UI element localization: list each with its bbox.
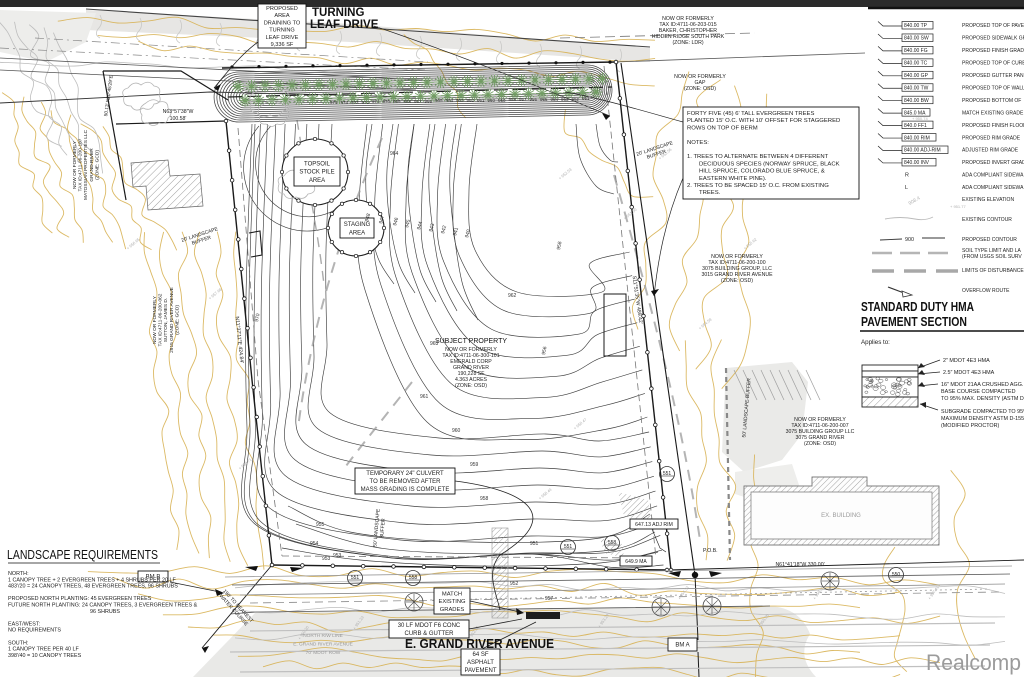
svg-text:PROPOSED FINISH GRADE: PROPOSED FINISH GRADE (962, 48, 1024, 54)
svg-text:EX. BUILDING: EX. BUILDING (821, 513, 861, 519)
svg-text:(ZONE: OSD): (ZONE: OSD) (721, 278, 753, 284)
svg-text:TO BE REMOVED AFTER: TO BE REMOVED AFTER (370, 479, 442, 485)
svg-text:HILL SPRUCE, COLORADO BLUE SPR: HILL SPRUCE, COLORADO BLUE SPRUCE, & (699, 169, 825, 175)
svg-text:TURNING: TURNING (269, 28, 294, 34)
svg-text:+ 950.74: + 950.74 (912, 116, 928, 121)
svg-text:PROPOSED GUTTER PAN: PROPOSED GUTTER PAN (962, 73, 1024, 79)
svg-text:STAGING: STAGING (344, 222, 371, 228)
svg-text:PROPOSED: PROPOSED (266, 6, 298, 12)
svg-text:551: 551 (564, 544, 573, 550)
svg-text:MASS GRADING IS COMPLETE: MASS GRADING IS COMPLETE (361, 487, 450, 493)
svg-text:LEAF DRIVE: LEAF DRIVE (266, 35, 299, 41)
svg-text:Applies to:: Applies to: (861, 339, 890, 346)
svg-text:(FROM USGS SOIL SURV: (FROM USGS SOIL SURV (962, 254, 1022, 260)
svg-text:Realcomp: Realcomp (926, 650, 1021, 675)
svg-text:840.00 BW: 840.00 BW (904, 98, 929, 104)
svg-text:483'/20 = 24 CANOPY TREES, 48: 483'/20 = 24 CANOPY TREES, 48 EVERGREEN … (8, 584, 178, 590)
svg-text:551: 551 (351, 575, 360, 581)
svg-text:958: 958 (509, 97, 517, 102)
svg-text:955: 955 (540, 97, 548, 102)
svg-text:N61°41′18″W 330.00′: N61°41′18″W 330.00′ (775, 562, 824, 568)
svg-text:SUTTON, JAMES D.: SUTTON, JAMES D. (163, 298, 169, 342)
svg-text:MATOSSIAN PROPERTIES LLC: MATOSSIAN PROPERTIES LLC (83, 129, 89, 200)
svg-text:PAVEMENT: PAVEMENT (464, 668, 496, 674)
svg-text:PROPOSED TOP OF PAVE: PROPOSED TOP OF PAVE (962, 23, 1024, 29)
svg-text:PROPOSED TOP OF CURB: PROPOSED TOP OF CURB (962, 61, 1024, 67)
svg-text:958: 958 (480, 496, 489, 502)
svg-text:647.13 ADJ RIM: 647.13 ADJ RIM (635, 522, 673, 528)
svg-text:963: 963 (430, 341, 439, 347)
svg-text:(ZONE: OSD): (ZONE: OSD) (804, 441, 836, 447)
svg-text:FUTURE NORTH PLANTING: 24 CANO: FUTURE NORTH PLANTING: 24 CANOPY TREES, … (8, 603, 198, 609)
svg-text:LIMITS OF DISTURBANCE: LIMITS OF DISTURBANCE (962, 268, 1024, 274)
svg-text:TAX ID:4711-06-200-187: TAX ID:4711-06-200-187 (78, 138, 84, 191)
svg-text:PROPOSED SIDEWALK GR: PROPOSED SIDEWALK GR (962, 36, 1024, 42)
svg-text:PROPOSED CONTOUR: PROPOSED CONTOUR (962, 237, 1017, 243)
svg-text:LEAF DRIVE: LEAF DRIVE (310, 19, 379, 31)
svg-text:(ZONE: LDR): (ZONE: LDR) (672, 40, 703, 46)
svg-text:MATCH EXISTING GRADE: MATCH EXISTING GRADE (962, 110, 1024, 116)
svg-text:30 LF MDOT F6 CONC: 30 LF MDOT F6 CONC (398, 623, 461, 629)
svg-text:ASPHALT: ASPHALT (467, 660, 494, 666)
svg-text:962: 962 (508, 293, 517, 299)
svg-text:840.00 GP: 840.00 GP (904, 73, 929, 79)
svg-text:NOW OR FORMERLY: NOW OR FORMERLY (72, 140, 78, 189)
svg-text:975: 975 (330, 100, 338, 105)
svg-text:964: 964 (390, 151, 399, 157)
svg-text:9,336 SF: 9,336 SF (271, 42, 294, 48)
svg-text:GRADES: GRADES (440, 607, 465, 613)
svg-text:BASE COURSE COMPACTED: BASE COURSE COMPACTED (941, 389, 1016, 395)
svg-text:ADA COMPLIANT SIDEWA: ADA COMPLIANT SIDEWA (962, 173, 1024, 179)
svg-text:1 CANOPY TREE + 2 EVERGREEN TR: 1 CANOPY TREE + 2 EVERGREEN TREES + 4 SH… (8, 577, 176, 583)
svg-text:951: 951 (530, 541, 539, 547)
svg-text:963: 963 (456, 98, 464, 103)
svg-text:OVERFLOW ROUTE: OVERFLOW ROUTE (962, 288, 1010, 294)
svg-text:PAVEMENT SECTION: PAVEMENT SECTION (861, 314, 967, 329)
svg-text:PROPOSED FINISH FLOOR: PROPOSED FINISH FLOOR (962, 123, 1024, 129)
svg-text:952: 952 (510, 581, 519, 587)
svg-text:965: 965 (435, 98, 443, 103)
svg-text:845.0 MA: 845.0 MA (904, 110, 926, 116)
svg-text:973: 973 (351, 100, 359, 105)
svg-text:840.0 FF1: 840.0 FF1 (904, 123, 927, 129)
svg-text:966: 966 (425, 99, 433, 104)
svg-text:GRAND RIVER: GRAND RIVER (89, 148, 95, 182)
svg-text:974: 974 (341, 100, 349, 105)
svg-text:840.00 SW: 840.00 SW (904, 36, 929, 42)
svg-text:AREA: AREA (309, 178, 325, 184)
svg-text:959: 959 (470, 462, 479, 468)
svg-text:840.00 ADJ-RIM: 840.00 ADJ-RIM (904, 148, 941, 154)
svg-text:N63°57′38″W: N63°57′38″W (163, 109, 194, 115)
svg-text:EAST/WEST:: EAST/WEST: (8, 621, 40, 627)
svg-text:558: 558 (409, 575, 418, 581)
svg-text:PLANTED 15' O.C. WITH 10' OFFS: PLANTED 15' O.C. WITH 10' OFFSET FOR STA… (687, 118, 840, 124)
svg-text:TURNING: TURNING (312, 7, 364, 19)
svg-text:2. TREES TO BE SPACED 15' O.: 2. TREES TO BE SPACED 15' O.C. FROM EXIS… (687, 183, 829, 189)
svg-text:961: 961 (420, 394, 429, 400)
svg-text:551: 551 (663, 471, 672, 477)
svg-text:398'/40 = 10 CANOPY TREES: 398'/40 = 10 CANOPY TREES (8, 653, 82, 659)
svg-text:969: 969 (393, 99, 401, 104)
svg-text:(ZONE: GCD): (ZONE: GCD) (94, 150, 100, 180)
svg-text:2.5″ MDOT 4E3 HMA: 2.5″ MDOT 4E3 HMA (943, 370, 995, 376)
svg-text:96 SHRUBS: 96 SHRUBS (90, 609, 120, 615)
svg-text:PROPOSED RIM GRADE: PROPOSED RIM GRADE (962, 135, 1021, 141)
svg-text:2″ MDOT 4E3 HMA: 2″ MDOT 4E3 HMA (943, 358, 990, 364)
svg-text:LANDSCAPE REQUIREMENTS: LANDSCAPE REQUIREMENTS (7, 548, 158, 562)
svg-text:16″ MDOT 21AA CRUSHED AGG.: 16″ MDOT 21AA CRUSHED AGG. (941, 382, 1023, 388)
svg-text:967: 967 (414, 99, 422, 104)
svg-text:953: 953 (322, 556, 331, 562)
svg-text:(ZONE: OSD): (ZONE: OSD) (684, 86, 716, 92)
svg-text:NOTES:: NOTES: (687, 140, 709, 146)
svg-text:TEMPORARY 24" CULVERT: TEMPORARY 24" CULVERT (366, 471, 444, 477)
svg-text:TO 95% MAX. DENSITY (ASTM D-15: TO 95% MAX. DENSITY (ASTM D-1557) (941, 396, 1024, 402)
svg-text:SUBJECT PROPERTY: SUBJECT PROPERTY (435, 338, 507, 345)
svg-text:E. GRAND RIVER AVENUE: E. GRAND RIVER AVENUE (405, 636, 554, 651)
svg-text:970: 970 (383, 99, 391, 104)
svg-text:+ 951.77: + 951.77 (950, 204, 966, 209)
svg-text:957: 957 (545, 596, 554, 602)
svg-text:PROPOSED INVERT GRAD: PROPOSED INVERT GRAD (962, 160, 1024, 166)
svg-text:954: 954 (310, 541, 319, 547)
svg-text:TREES.: TREES. (699, 190, 721, 196)
svg-text:DECIDUOUS SPECIES (NORWAY SPRU: DECIDUOUS SPECIES (NORWAY SPRUCE, BLACK (699, 161, 840, 167)
svg-text:STOCK PILE: STOCK PILE (299, 170, 334, 176)
svg-text:SUBGRADE COMPACTED TO 95%: SUBGRADE COMPACTED TO 95% (941, 409, 1024, 415)
svg-text:(ZONE: OSD): (ZONE: OSD) (455, 383, 487, 389)
svg-text:ADJUSTED RIM GRADE: ADJUSTED RIM GRADE (962, 148, 1019, 154)
svg-text:L: L (905, 185, 908, 191)
svg-text:957: 957 (519, 97, 527, 102)
svg-text:971: 971 (372, 99, 380, 104)
svg-text:ROWS ON TOP OF BERM: ROWS ON TOP OF BERM (687, 125, 758, 131)
svg-text:955: 955 (316, 522, 325, 528)
svg-text:952: 952 (572, 97, 580, 102)
svg-text:TAX ID:4711-06-200-062: TAX ID:4711-06-200-062 (158, 293, 164, 346)
svg-text:840.00 TP: 840.00 TP (904, 23, 928, 29)
svg-text:ADA COMPLIANT SIDEWA: ADA COMPLIANT SIDEWA (962, 185, 1024, 191)
svg-text:900: 900 (905, 237, 914, 243)
svg-text:840.00 RIM: 840.00 RIM (904, 135, 930, 141)
svg-text:EASTERN WHITE PINE).: EASTERN WHITE PINE). (699, 176, 767, 182)
svg-text:70' MDOT ROW: 70' MDOT ROW (306, 650, 341, 656)
svg-text:840.00 FG: 840.00 FG (904, 48, 928, 54)
svg-text:DRAINING TO: DRAINING TO (264, 20, 301, 26)
svg-text:NOW OR FORMERLY: NOW OR FORMERLY (152, 295, 158, 344)
svg-text:(ZONE: GCD): (ZONE: GCD) (174, 305, 180, 335)
svg-text:840.00 TC: 840.00 TC (904, 61, 928, 67)
svg-text:SOUTH:: SOUTH: (8, 640, 28, 646)
svg-text:961: 961 (477, 98, 485, 103)
svg-text:AREA: AREA (349, 230, 365, 236)
svg-text:968: 968 (404, 99, 412, 104)
svg-text:MAXIMUM DENSITY ASTM D-1557: MAXIMUM DENSITY ASTM D-1557 (941, 416, 1024, 422)
svg-text:960: 960 (452, 428, 461, 434)
svg-text:BM A: BM A (675, 643, 689, 649)
svg-text:STANDARD DUTY HMA: STANDARD DUTY HMA (861, 299, 974, 314)
svg-text:EXISTING: EXISTING (438, 599, 466, 605)
svg-text:(MODIFIED PROCTOR): (MODIFIED PROCTOR) (941, 423, 1000, 429)
svg-text:AREA: AREA (274, 13, 290, 19)
svg-text:956: 956 (530, 97, 538, 102)
svg-text:550: 550 (892, 572, 901, 578)
svg-text:2915 GRAND RIVER AVENUE: 2915 GRAND RIVER AVENUE (169, 287, 175, 353)
svg-text:964: 964 (446, 98, 454, 103)
svg-text:840.00 TW: 840.00 TW (904, 85, 929, 91)
svg-text:E. GRAND RIVER AVENUE: E. GRAND RIVER AVENUE (293, 641, 353, 647)
svg-text:1 CANOPY TREE PER 40 LF: 1 CANOPY TREE PER 40 LF (8, 647, 80, 653)
svg-text:962: 962 (467, 98, 475, 103)
svg-text:558: 558 (608, 540, 617, 546)
svg-text:EXISTING CONTOUR: EXISTING CONTOUR (962, 217, 1012, 223)
svg-text:NORTH R/W LINE: NORTH R/W LINE (303, 633, 343, 639)
svg-text:NO REQUIREMENTS: NO REQUIREMENTS (8, 628, 61, 634)
svg-text:1. TREES TO ALTERNATE BETWEE: 1. TREES TO ALTERNATE BETWEEN 4 DIFFEREN… (687, 154, 829, 160)
svg-text:TOPSOIL: TOPSOIL (304, 161, 331, 167)
svg-text:649.9 MA: 649.9 MA (625, 559, 647, 565)
svg-text:EXISTING ELEVATION: EXISTING ELEVATION (962, 197, 1014, 203)
svg-text:P.O.B.: P.O.B. (703, 548, 718, 554)
svg-text:959: 959 (498, 98, 506, 103)
svg-text:PROPOSED NORTH PLANTING: 45 EV: PROPOSED NORTH PLANTING: 45 EVERGREEN TR… (8, 596, 152, 602)
svg-text:954: 954 (551, 97, 559, 102)
svg-text:840.00 INV: 840.00 INV (904, 160, 930, 166)
svg-text:972: 972 (362, 100, 370, 105)
svg-text:FORTY FIVE (45) 6' TALL EVERGR: FORTY FIVE (45) 6' TALL EVERGREEN TREES (687, 111, 814, 117)
svg-text:R: R (905, 173, 909, 179)
svg-text:953: 953 (333, 553, 342, 559)
svg-text:PROPOSED BOTTOM OF: PROPOSED BOTTOM OF (962, 98, 1021, 104)
svg-text:PROPOSED TOP OF WALL: PROPOSED TOP OF WALL (962, 85, 1024, 91)
svg-text:NORTH:: NORTH: (8, 571, 29, 577)
svg-text:MATCH: MATCH (442, 591, 462, 597)
svg-text:64 SF: 64 SF (472, 652, 488, 658)
svg-text:960: 960 (488, 98, 496, 103)
svg-text:100.58': 100.58' (170, 116, 187, 122)
